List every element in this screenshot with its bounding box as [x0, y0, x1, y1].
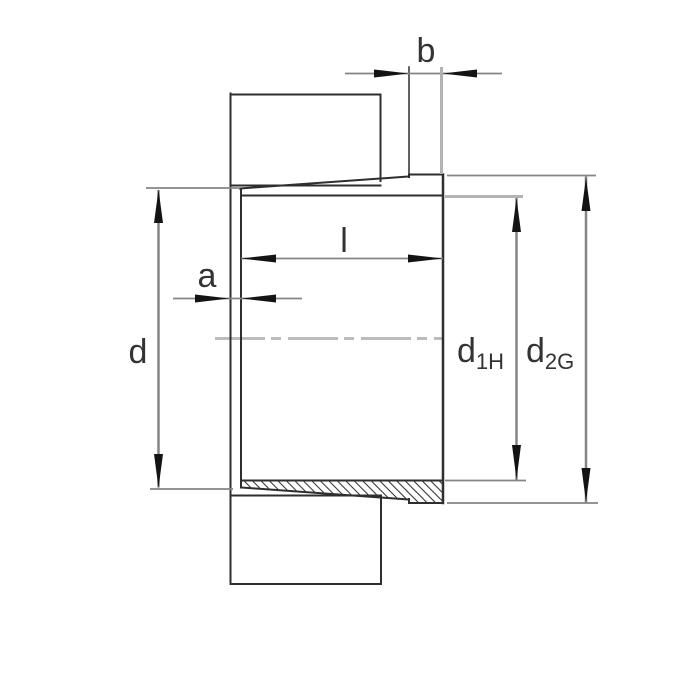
dimension-label-group: b l a d d1H d2G [129, 32, 575, 374]
dim-label-d2g: d2G [526, 332, 574, 374]
dim-d-arrow-top [154, 190, 163, 224]
part-outline-group [231, 67, 444, 584]
section-hatch-region [241, 481, 443, 504]
dim-label-d2g-subscript: 2G [545, 349, 574, 374]
dim-d1h-arrow-top [512, 198, 521, 232]
sleeve-taper-top [240, 177, 409, 189]
dim-label-d2g-base: d [526, 332, 545, 370]
dim-label-l: l [340, 222, 348, 260]
dim-label-d1h: d1H [457, 332, 504, 374]
dim-label-d1h-base: d [457, 332, 476, 370]
dim-d1h-arrow-bottom [512, 445, 521, 480]
technical-drawing-canvas: b l a d d1H d2G [0, 0, 680, 680]
dim-b-arrow-right [443, 70, 478, 78]
dim-a-arrow-left [195, 295, 230, 303]
dim-a-arrow-right [242, 295, 277, 303]
dim-label-d: d [129, 333, 148, 371]
dim-l-arrow-left [241, 255, 276, 263]
dimension-arrow-group [154, 70, 591, 503]
dim-d2g-arrow-top [582, 178, 591, 212]
dim-label-b: b [417, 32, 436, 70]
dim-d2g-arrow-bottom [582, 468, 591, 502]
light-extension-group [442, 67, 524, 197]
dim-b-arrow-left [374, 70, 409, 78]
sleeve-thread-step-top [409, 175, 443, 178]
dim-d-arrow-bottom [154, 454, 163, 488]
dim-label-a: a [198, 257, 217, 295]
dim-l-arrow-right [408, 255, 443, 263]
drawing-page: b l a d d1H d2G [0, 0, 680, 680]
dim-label-d1h-subscript: 1H [476, 349, 504, 374]
